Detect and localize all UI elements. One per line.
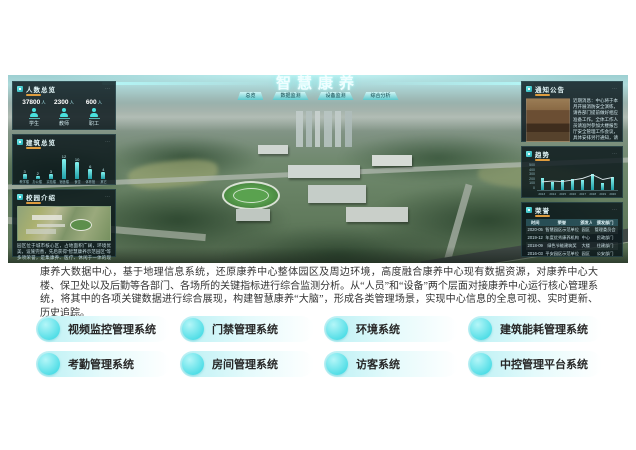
system-dot-icon	[470, 318, 492, 340]
nav-button[interactable]: 设备监测	[318, 92, 354, 100]
panel-more-dots[interactable]: ⋯	[612, 207, 618, 213]
trend-plot-wrap: 20132014201520162017201820192020	[537, 163, 618, 196]
systems-grid: 视频监控管理系统门禁管理系统环境系统建筑能耗管理系统考勤管理系统房间管理系统访客…	[36, 316, 602, 377]
system-item[interactable]: 房间管理系统	[180, 351, 314, 377]
bar-label: 食堂	[74, 180, 80, 185]
panel-header: 校园介绍 ⋯	[17, 193, 111, 201]
table-cell: 平安园区示范单位	[544, 250, 579, 258]
panel-notice: 通知公告 ⋯ 近期消息：中心将于本月开展消防安全演练，请各部门提前做好相应准备工…	[521, 81, 623, 142]
table-header-cell: 荣誉	[544, 219, 579, 226]
x-tick-label: 2013	[539, 192, 546, 196]
bar-label: 体育馆	[86, 180, 95, 185]
system-dot-icon	[38, 318, 60, 340]
bar	[36, 176, 40, 179]
bar-column: 10食堂	[71, 151, 84, 185]
stat-unit: 人	[69, 100, 74, 105]
y-tick-label: 200	[526, 177, 535, 181]
table-cell: 园区	[579, 250, 592, 258]
title-underline	[535, 94, 550, 96]
trend-polyline	[542, 175, 613, 182]
notice-text: 近期消息：中心将于本月开展消防安全演练，请各部门提前做好相应准备工作。全体工作人…	[573, 98, 618, 140]
campus-building	[258, 145, 288, 154]
system-label: 访客系统	[356, 356, 400, 372]
panel-buildings-overview: 建筑总览 ⋯ 3教学楼2办公楼3实验楼12宿舍楼10食堂6体育馆4其它	[12, 134, 116, 185]
panel-title: 建筑总览	[26, 137, 105, 147]
stat-value: 600人	[79, 99, 109, 107]
panel-title: 人数总览	[26, 84, 105, 94]
title-underline	[535, 215, 550, 217]
stat-label: 教师	[49, 120, 79, 127]
x-tick-label: 2016	[569, 192, 576, 196]
table-header-row: 时间荣誉颁发人颁发部门	[526, 219, 618, 226]
buildings-bar-chart: 3教学楼2办公楼3实验楼12宿舍楼10食堂6体育馆4其它	[17, 151, 111, 185]
system-item[interactable]: 视频监控管理系统	[36, 316, 170, 342]
stat-value: 37800人	[19, 99, 49, 107]
table-cell: 中心	[579, 234, 592, 242]
bar-column: 6体育馆	[84, 151, 97, 185]
table-cell: 绿色节能建筑奖	[544, 242, 579, 250]
table-header-cell: 颁发部门	[592, 219, 618, 226]
people-stat: 2300人教师	[49, 99, 79, 127]
bar	[101, 172, 105, 179]
panel-more-dots[interactable]: ⋯	[612, 151, 618, 157]
bar-column: 12宿舍楼	[57, 151, 70, 185]
page-body: { "dashboard": { "title": "智慧康养", "nav_b…	[0, 0, 636, 450]
person-icon	[59, 108, 70, 119]
bar	[62, 159, 66, 179]
system-item[interactable]: 环境系统	[324, 316, 458, 342]
system-label: 视频监控管理系统	[68, 321, 156, 337]
system-item[interactable]: 访客系统	[324, 351, 458, 377]
campus-building	[236, 209, 270, 221]
panel-header: 趋势 ⋯	[526, 150, 618, 158]
table-cell: 公安部门	[592, 250, 618, 258]
panel-header: 人数总览 ⋯	[17, 85, 111, 93]
title-underline	[535, 159, 550, 161]
bar-label: 其它	[100, 180, 106, 185]
panel-icon	[526, 86, 532, 92]
table-cell: 年度优秀康养机构	[544, 234, 579, 242]
stat-number: 2300	[54, 99, 68, 106]
stat-value: 2300人	[49, 99, 79, 107]
table-cell: 大楼	[579, 242, 592, 250]
panel-title: 通知公告	[535, 84, 612, 94]
trend-line-chart	[537, 163, 618, 190]
campus-aerial-photo	[17, 206, 111, 241]
panel-icon	[17, 86, 23, 92]
table-cell: 2018-09	[526, 242, 544, 250]
product-page: 智慧康养 总览数据监测设备监测综合分析 人数总览 ⋯ 37800人学生2300人…	[0, 0, 636, 450]
trend-chart: 5004003002001000 20132014201520162017201…	[526, 163, 618, 196]
campus-building	[346, 207, 408, 222]
system-label: 环境系统	[356, 321, 400, 337]
campus-building	[288, 165, 360, 178]
table-row: 2020-05智慧园区示范单位园区管理委员会	[526, 226, 618, 234]
panel-more-dots[interactable]: ⋯	[105, 139, 111, 145]
bar	[88, 169, 92, 179]
panel-icon	[526, 207, 532, 213]
panel-more-dots[interactable]: ⋯	[105, 194, 111, 200]
notice-photo	[526, 98, 570, 142]
table-cell: 2019-12	[526, 234, 544, 242]
y-tick-label: 0	[526, 186, 535, 190]
panel-icon	[17, 139, 23, 145]
bar	[49, 174, 53, 179]
table-cell: 2016-03	[526, 250, 544, 258]
system-item[interactable]: 中控管理平台系统	[468, 351, 602, 377]
table-cell: 管理委员会	[592, 226, 618, 234]
bar-label: 办公楼	[33, 180, 42, 185]
system-label: 考勤管理系统	[68, 356, 134, 372]
campus-building	[372, 155, 412, 166]
panel-header: 通知公告 ⋯	[526, 85, 618, 93]
description-paragraph: 康养大数据中心，基于地理信息系统，还原康养中心整体园区及周边环境，高度融合康养中…	[40, 266, 598, 320]
person-icon	[29, 108, 40, 119]
nav-button[interactable]: 综合分析	[363, 92, 399, 100]
panel-more-dots[interactable]: ⋯	[105, 86, 111, 92]
stat-label: 职工	[79, 120, 109, 127]
system-dot-icon	[182, 353, 204, 375]
people-stat: 600人职工	[79, 99, 109, 127]
system-dot-icon	[326, 353, 348, 375]
table-cell: 民政部门	[592, 234, 618, 242]
panel-icon	[526, 151, 532, 157]
system-dot-icon	[182, 318, 204, 340]
bar-column: 3实验楼	[44, 151, 57, 185]
trend-x-axis: 20132014201520162017201820192020	[537, 192, 618, 196]
system-dot-icon	[470, 353, 492, 375]
stat-number: 37800	[22, 99, 40, 106]
campus-building	[308, 185, 366, 203]
stat-unit: 人	[41, 100, 46, 105]
y-tick-label: 100	[526, 181, 535, 185]
people-stats: 37800人学生2300人教师600人职工	[17, 98, 111, 128]
panel-people-overview: 人数总览 ⋯ 37800人学生2300人教师600人职工	[12, 81, 116, 130]
y-tick-label: 500	[526, 163, 535, 167]
system-dot-icon	[38, 353, 60, 375]
x-tick-label: 2018	[589, 192, 596, 196]
y-tick-label: 400	[526, 168, 535, 172]
notice-body: 近期消息：中心将于本月开展消防安全演练，请各部门提前做好相应准备工作。全体工作人…	[526, 98, 618, 142]
x-tick-label: 2017	[579, 192, 586, 196]
system-label: 中控管理平台系统	[500, 356, 588, 372]
panel-title: 校园介绍	[26, 192, 105, 202]
panel-trend: 趋势 ⋯ 5004003002001000 201320142015201620…	[521, 146, 623, 198]
trend-plot	[537, 163, 618, 191]
system-label: 建筑能耗管理系统	[500, 321, 588, 337]
bar-column: 2办公楼	[31, 151, 44, 185]
table-row: 2018-09绿色节能建筑奖大楼住建部门	[526, 242, 618, 250]
title-underline	[26, 94, 41, 96]
table-row: 2019-12年度优秀康养机构中心民政部门	[526, 234, 618, 242]
stadium	[222, 181, 280, 210]
x-tick-label: 2020	[610, 192, 617, 196]
nav-button[interactable]: 总览	[237, 92, 263, 100]
system-item[interactable]: 门禁管理系统	[180, 316, 314, 342]
x-tick-label: 2019	[600, 192, 607, 196]
system-label: 门禁管理系统	[212, 321, 278, 337]
panel-header: 荣誉 ⋯	[526, 206, 618, 214]
panel-title: 趋势	[535, 149, 612, 159]
panel-icon	[17, 194, 23, 200]
bar	[75, 162, 79, 179]
title-underline	[26, 202, 41, 204]
title-underline	[26, 147, 41, 149]
table-header-cell: 时间	[526, 219, 544, 226]
person-icon	[89, 108, 100, 119]
people-stat: 37800人学生	[19, 99, 49, 127]
system-dot-icon	[326, 318, 348, 340]
nav-button[interactable]: 数据监测	[272, 92, 308, 100]
campus-cluster	[196, 137, 456, 233]
y-tick-label: 300	[526, 172, 535, 176]
table-header-cell: 颁发人	[579, 219, 592, 226]
x-tick-label: 2015	[559, 192, 566, 196]
trend-y-axis: 5004003002001000	[526, 163, 537, 190]
panel-title: 荣誉	[535, 205, 612, 215]
intro-text: 园区位于城市核心区，占地面积广阔，环境优美，设施完善，先后获得“智慧康养示范园区…	[17, 243, 111, 262]
table-cell: 住建部门	[592, 242, 618, 250]
bar-column: 3教学楼	[18, 151, 31, 185]
system-item[interactable]: 考勤管理系统	[36, 351, 170, 377]
bar-label: 实验楼	[46, 180, 55, 185]
bar-label: 宿舍楼	[59, 180, 68, 185]
stat-label: 学生	[19, 120, 49, 127]
stat-unit: 人	[98, 100, 103, 105]
table-row: 2016-03平安园区示范单位园区公安部门	[526, 250, 618, 258]
system-item[interactable]: 建筑能耗管理系统	[468, 316, 602, 342]
table-cell: 智慧园区示范单位	[544, 226, 579, 234]
panel-campus-intro: 校园介绍 ⋯ 园区位于城市核心区，占地面积广阔，环境优美，设施完善，先后获得“智…	[12, 189, 116, 257]
system-label: 房间管理系统	[212, 356, 278, 372]
table-cell: 园区	[579, 226, 592, 234]
panel-more-dots[interactable]: ⋯	[612, 86, 618, 92]
honors-table: 时间荣誉颁发人颁发部门 2020-05智慧园区示范单位园区管理委员会2019-1…	[526, 219, 618, 258]
table-cell: 2020-05	[526, 226, 544, 234]
stat-number: 600	[86, 99, 97, 106]
panel-honors: 荣誉 ⋯ 时间荣誉颁发人颁发部门 2020-05智慧园区示范单位园区管理委员会2…	[521, 202, 623, 257]
smart-care-dashboard: 智慧康养 总览数据监测设备监测综合分析 人数总览 ⋯ 37800人学生2300人…	[8, 75, 628, 263]
bar	[23, 174, 27, 179]
x-tick-label: 2014	[549, 192, 556, 196]
bar-column: 4其它	[97, 151, 110, 185]
bar-label: 教学楼	[20, 180, 29, 185]
panel-header: 建筑总览 ⋯	[17, 138, 111, 146]
